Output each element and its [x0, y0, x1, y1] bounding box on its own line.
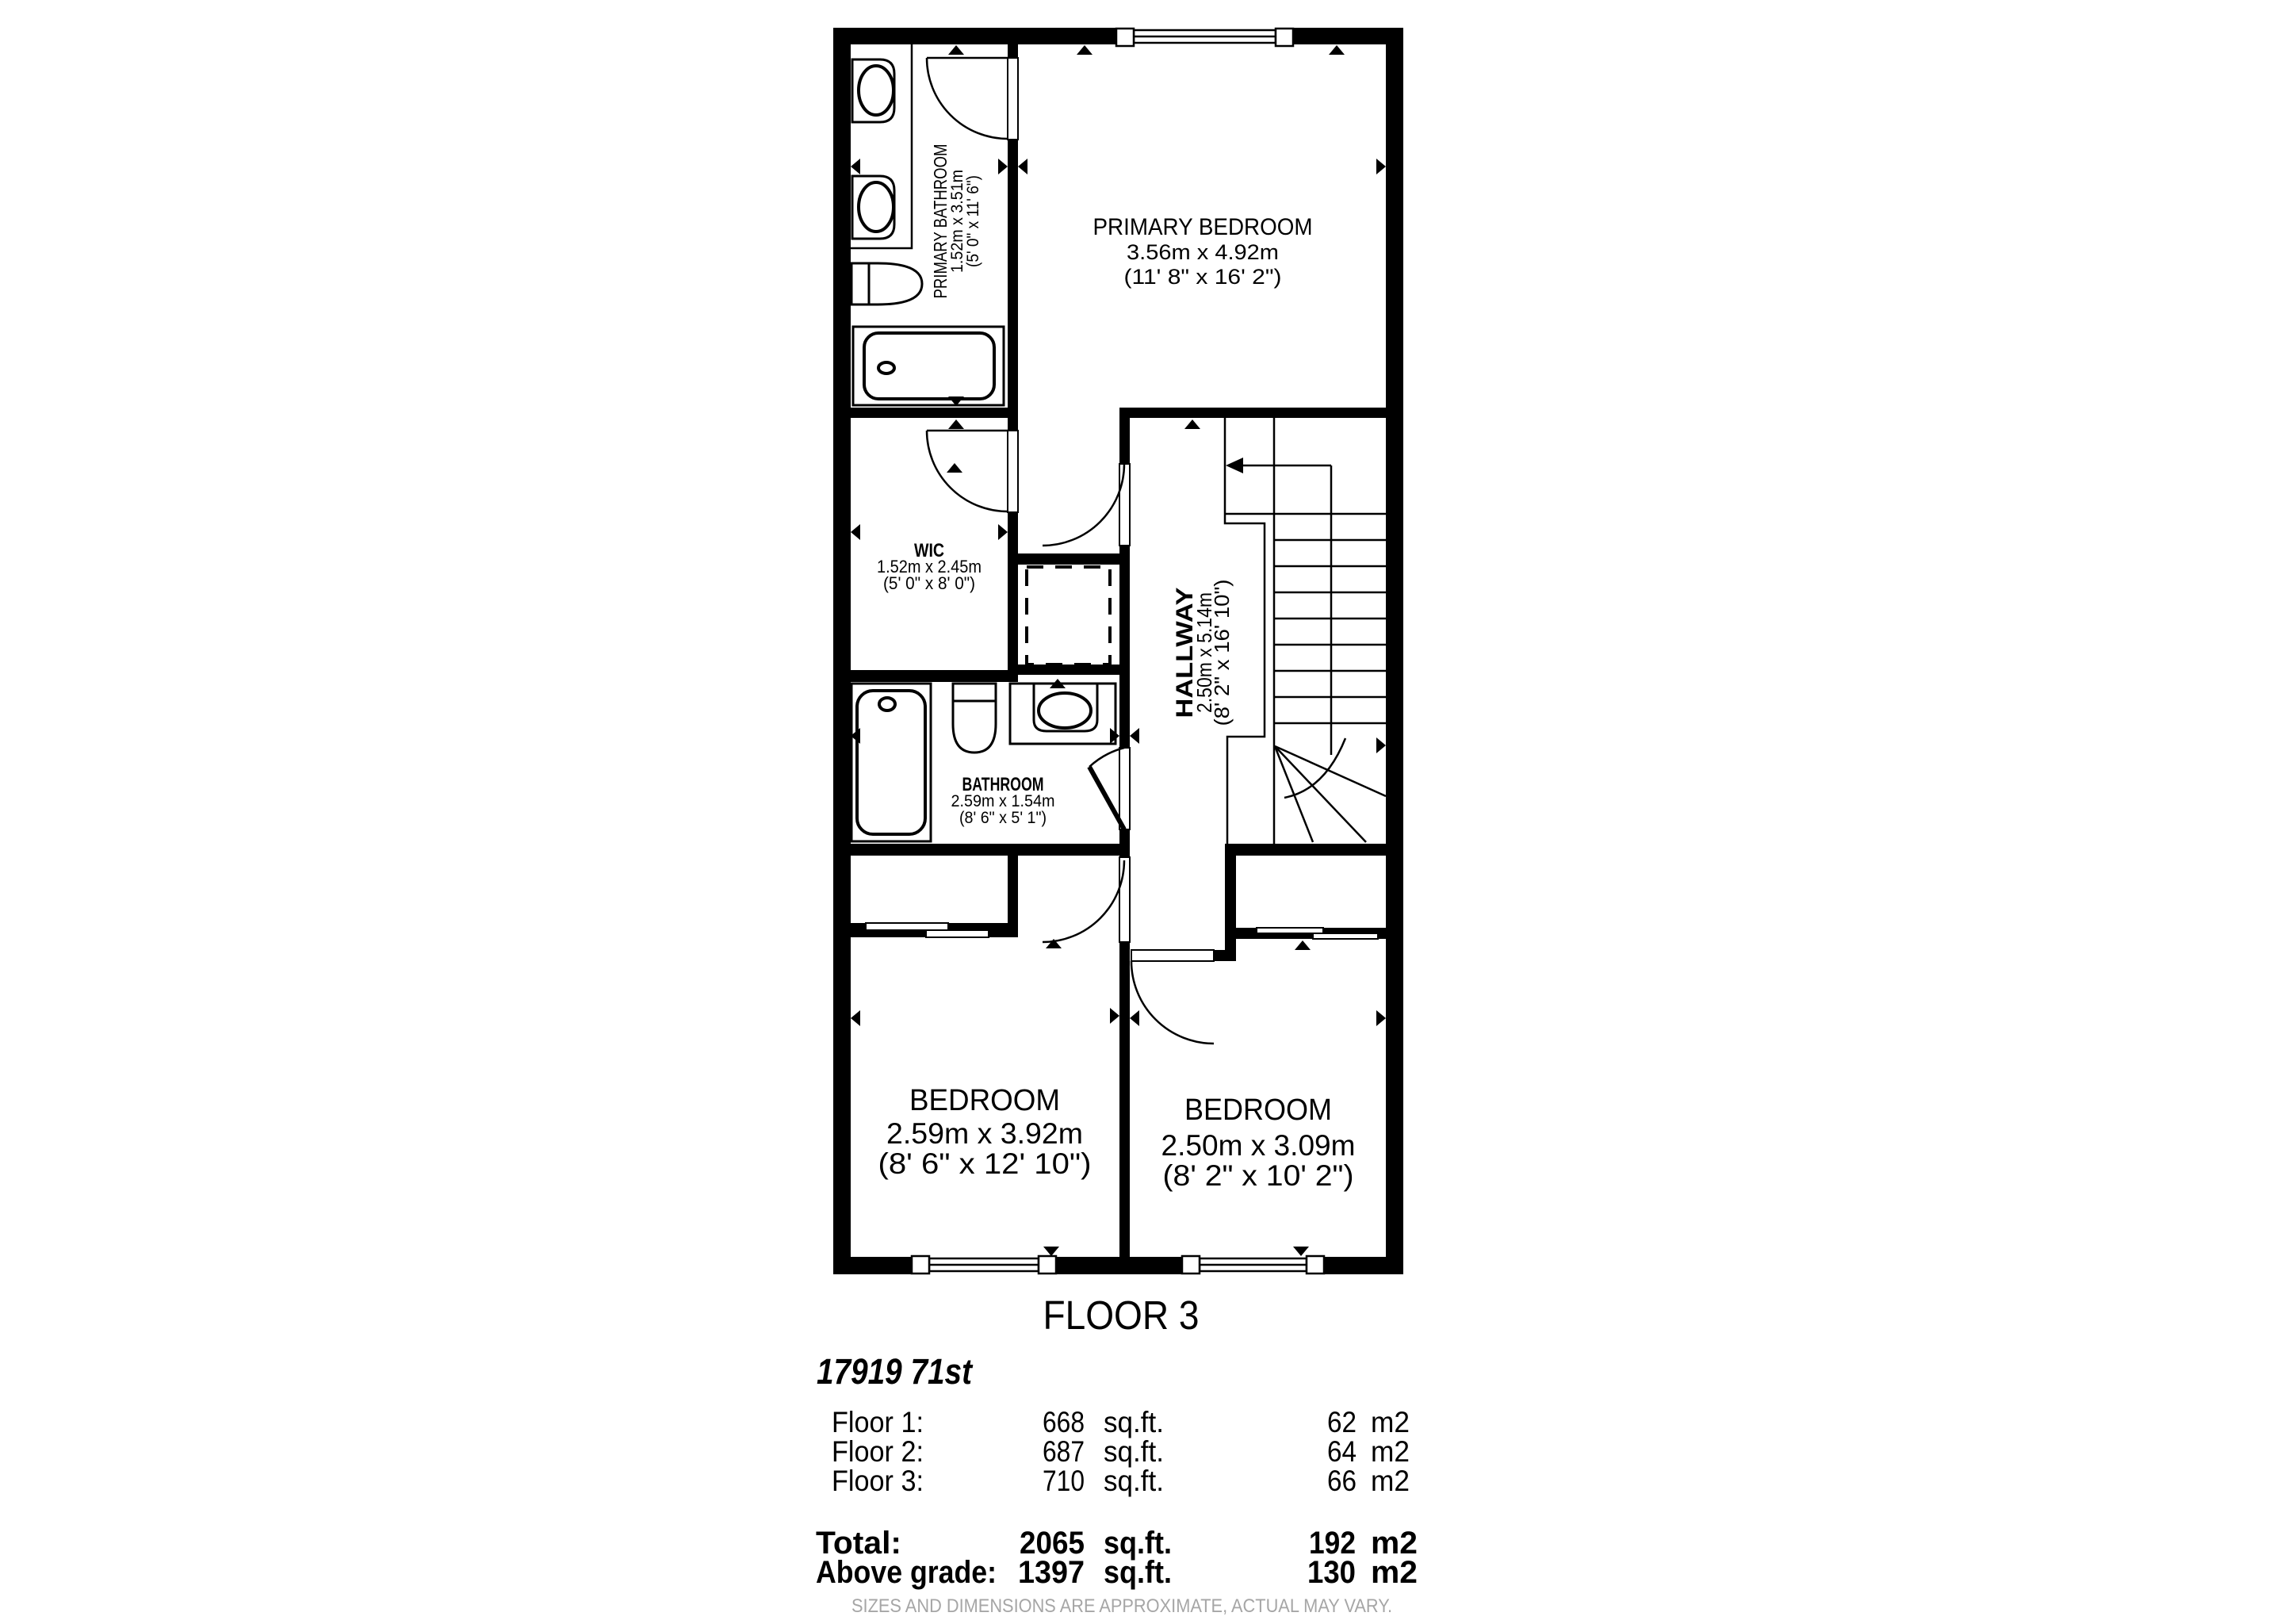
svg-text:m2: m2 — [1371, 1406, 1410, 1438]
svg-text:Floor 1:: Floor 1: — [832, 1406, 924, 1438]
svg-text:PRIMARY BEDROOM: PRIMARY BEDROOM — [1093, 214, 1313, 240]
svg-text:(8' 6" x 12' 10"): (8' 6" x 12' 10") — [878, 1147, 1092, 1180]
svg-text:sq.ft.: sq.ft. — [1104, 1555, 1172, 1590]
svg-text:62: 62 — [1327, 1406, 1357, 1438]
svg-text:m2: m2 — [1371, 1465, 1410, 1497]
svg-text:2.50m x 3.09m: 2.50m x 3.09m — [1161, 1129, 1356, 1162]
svg-text:2.59m x 1.54m: 2.59m x 1.54m — [951, 792, 1055, 810]
svg-text:sq.ft.: sq.ft. — [1104, 1406, 1164, 1438]
svg-text:SIZES AND DIMENSIONS ARE APPRO: SIZES AND DIMENSIONS ARE APPROXIMATE, AC… — [851, 1595, 1392, 1617]
svg-text:710: 710 — [1043, 1465, 1085, 1497]
svg-text:(5' 0" x 8' 0"): (5' 0" x 8' 0") — [883, 573, 975, 593]
svg-text:Floor 3:: Floor 3: — [832, 1465, 924, 1497]
svg-text:sq.ft.: sq.ft. — [1104, 1435, 1164, 1468]
svg-text:(8' 6" x 5' 1"): (8' 6" x 5' 1") — [959, 809, 1047, 827]
svg-text:668: 668 — [1043, 1406, 1085, 1438]
svg-text:64: 64 — [1327, 1435, 1357, 1468]
svg-text:2.59m x 3.92m: 2.59m x 3.92m — [886, 1117, 1083, 1150]
svg-text:BEDROOM: BEDROOM — [909, 1084, 1060, 1117]
svg-text:m2: m2 — [1371, 1555, 1418, 1590]
svg-text:m2: m2 — [1371, 1435, 1410, 1468]
svg-text:3.56m x 4.92m: 3.56m x 4.92m — [1127, 240, 1279, 264]
svg-text:17919 71st: 17919 71st — [817, 1351, 974, 1392]
svg-text:FLOOR 3: FLOOR 3 — [1043, 1293, 1200, 1338]
svg-text:Floor 2:: Floor 2: — [832, 1435, 924, 1468]
svg-text:(8' 2" x 10' 2"): (8' 2" x 10' 2") — [1163, 1159, 1354, 1192]
svg-text:Above grade:: Above grade: — [816, 1555, 997, 1590]
svg-text:130: 130 — [1307, 1555, 1356, 1590]
svg-text:1397: 1397 — [1018, 1555, 1085, 1590]
svg-text:sq.ft.: sq.ft. — [1104, 1465, 1164, 1497]
svg-text:687: 687 — [1043, 1435, 1085, 1468]
svg-text:66: 66 — [1327, 1465, 1357, 1497]
svg-text:(5' 0" x 11' 6"): (5' 0" x 11' 6") — [964, 175, 982, 267]
svg-text:(8' 2" x 16' 10"): (8' 2" x 16' 10") — [1210, 580, 1234, 726]
svg-text:(11' 8" x 16' 2"): (11' 8" x 16' 2") — [1124, 265, 1282, 289]
svg-text:BEDROOM: BEDROOM — [1184, 1094, 1332, 1127]
